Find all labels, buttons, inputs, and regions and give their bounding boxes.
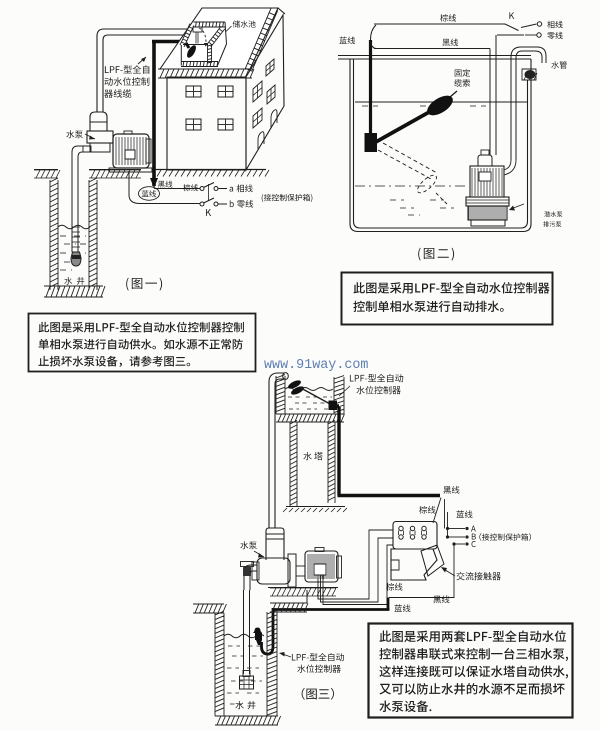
svg-text:www.91way.com: www.91way.com bbox=[264, 358, 368, 373]
